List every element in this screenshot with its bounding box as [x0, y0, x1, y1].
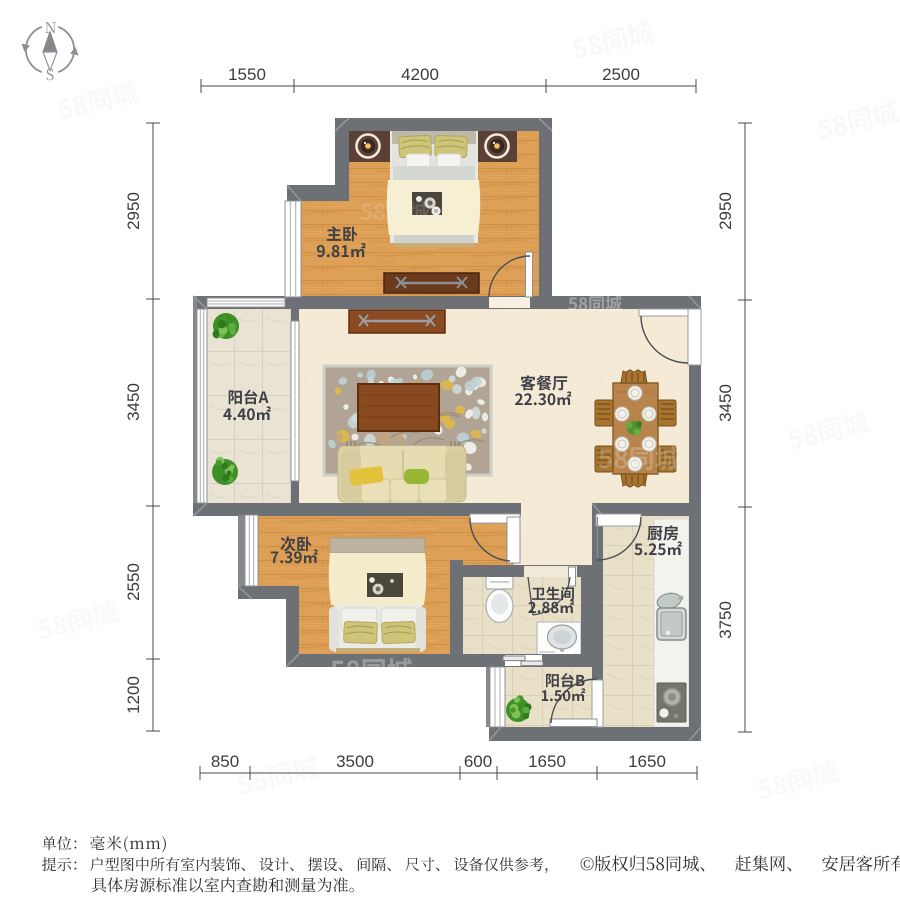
- svg-text:1200: 1200: [124, 676, 143, 714]
- svg-text:3500: 3500: [336, 752, 374, 771]
- svg-text:600: 600: [464, 752, 492, 771]
- svg-text:1550: 1550: [228, 65, 266, 84]
- svg-text:850: 850: [211, 752, 239, 771]
- svg-text:2950: 2950: [124, 192, 143, 230]
- svg-text:1650: 1650: [628, 752, 666, 771]
- svg-text:1650: 1650: [528, 752, 566, 771]
- svg-text:2550: 2550: [124, 563, 143, 601]
- svg-text:3750: 3750: [716, 601, 735, 639]
- svg-text:3450: 3450: [716, 384, 735, 422]
- svg-text:2500: 2500: [602, 65, 640, 84]
- svg-text:3450: 3450: [124, 383, 143, 421]
- svg-text:2950: 2950: [716, 192, 735, 230]
- svg-text:4200: 4200: [401, 65, 439, 84]
